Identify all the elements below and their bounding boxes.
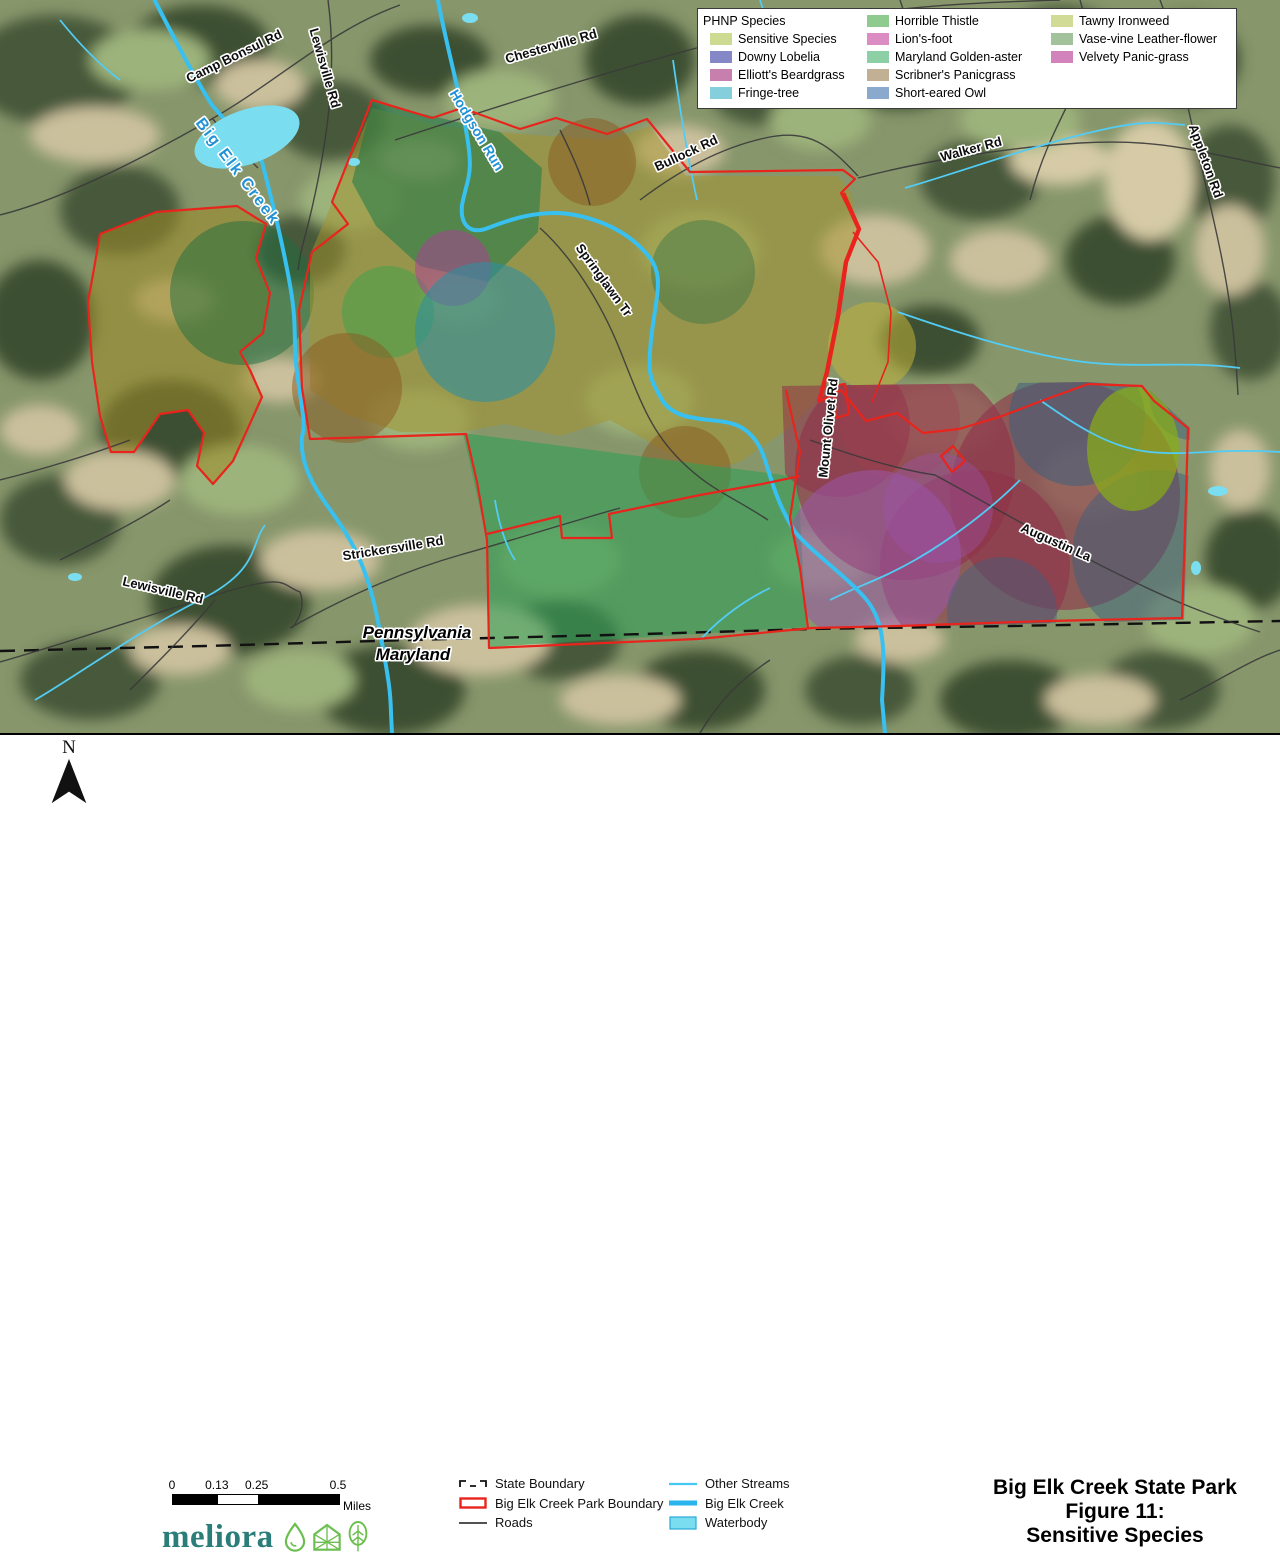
scale-bar: 00.130.250.5: [172, 1478, 338, 1505]
legend-label: Velvety Panic-grass: [1079, 50, 1189, 64]
scale-bar-graphic: [172, 1494, 340, 1505]
legend-swatch-elliott-s-beardgrass: [710, 69, 732, 81]
scale-tick-0-5: 0.5: [330, 1478, 347, 1492]
legend-swatch-sensitive-species: [710, 33, 732, 45]
legend-swatch-tawny-ironweed: [1051, 15, 1073, 27]
footer-legend-label: Other Streams: [705, 1476, 790, 1491]
legend-swatch-short-eared-owl: [867, 87, 889, 99]
footer-symbol-state-boundary: [458, 1478, 492, 1490]
map-title-line-2: Figure 11:: [960, 1500, 1270, 1524]
park-boundary-icon: [458, 1496, 488, 1510]
state-boundary-icon: [458, 1478, 488, 1490]
legend-item-velvety-panic-grass: Velvety Panic-grass: [1051, 48, 1232, 66]
footer-legend-label: Roads: [495, 1515, 533, 1530]
footer-legend-item-other-streams: Other Streams: [668, 1474, 790, 1494]
scale-unit: Miles: [343, 1499, 371, 1513]
legend-swatch-fringe-tree: [710, 87, 732, 99]
stream-thin-icon: [668, 1479, 698, 1489]
north-arrow-icon: [47, 757, 91, 807]
droplet-icon: [282, 1520, 308, 1554]
legend-label: Fringe-tree: [738, 86, 799, 100]
footer-legend-item-big-elk-creek-park-boundary: Big Elk Creek Park Boundary: [458, 1494, 663, 1514]
footer-symbol-waterbody: [668, 1515, 702, 1531]
footer-symbol-road: [458, 1518, 492, 1528]
boundary-legend: State BoundaryBig Elk Creek Park Boundar…: [458, 1474, 663, 1533]
tree-icon: [346, 1520, 370, 1554]
legend-swatch-scribner-s-panicgrass: [867, 69, 889, 81]
figure-page: Camp Bonsul RdLewisville RdChesterville …: [0, 0, 1280, 845]
legend-item-elliott-s-beardgrass: Elliott's Beardgrass: [703, 66, 867, 84]
legend-label: Sensitive Species: [738, 32, 837, 46]
legend-label: Tawny Ironweed: [1079, 14, 1169, 28]
map-footer: N 00.130.250.5 Miles meliora: [0, 733, 1280, 845]
legend-item-sensitive-species: Sensitive Species: [703, 30, 867, 48]
north-label: N: [46, 739, 92, 757]
legend-swatch-velvety-panic-grass: [1051, 51, 1073, 63]
footer-legend-label: State Boundary: [495, 1476, 585, 1491]
legend-label: Elliott's Beardgrass: [738, 68, 845, 82]
greenhouse-icon: [311, 1520, 343, 1554]
north-arrow: N: [46, 739, 92, 812]
water-legend: Other StreamsBig Elk CreekWaterbody: [668, 1474, 790, 1533]
map-title: Big Elk Creek State ParkFigure 11:Sensit…: [960, 1476, 1270, 1548]
legend-label: Horrible Thistle: [895, 14, 979, 28]
legend-item-scribner-s-panicgrass: Scribner's Panicgrass: [867, 66, 1051, 84]
legend-label: Downy Lobelia: [738, 50, 820, 64]
legend-label: Vase-vine Leather-flower: [1079, 32, 1217, 46]
scale-tick-0-25: 0.25: [245, 1478, 268, 1492]
legend-item-fringe-tree: Fringe-tree: [703, 84, 867, 102]
footer-symbol-stream-thick: [668, 1498, 702, 1508]
footer-legend-label: Big Elk Creek Park Boundary: [495, 1496, 663, 1511]
road-icon: [458, 1518, 488, 1528]
legend-item-lion-s-foot: Lion's-foot: [867, 30, 1051, 48]
overlay-fringe-tree: [415, 262, 555, 402]
legend-item-tawny-ironweed: Tawny Ironweed: [1051, 12, 1232, 30]
footer-legend-label: Big Elk Creek: [705, 1496, 784, 1511]
legend-item-horrible-thistle: Horrible Thistle: [867, 12, 1051, 30]
footer-legend-item-big-elk-creek: Big Elk Creek: [668, 1494, 790, 1514]
map-graphics: [0, 0, 1280, 733]
legend-item-short-eared-owl: Short-eared Owl: [867, 84, 1051, 102]
waterbody-icon: [668, 1515, 698, 1531]
map-title-line-1: Big Elk Creek State Park: [960, 1476, 1270, 1500]
footer-legend-label: Waterbody: [705, 1515, 767, 1530]
footer-legend-item-state-boundary: State Boundary: [458, 1474, 663, 1494]
legend-label: Short-eared Owl: [895, 86, 986, 100]
legend-label: Scribner's Panicgrass: [895, 68, 1016, 82]
legend-label: Lion's-foot: [895, 32, 952, 46]
footer-symbol-park-boundary: [458, 1496, 492, 1510]
legend-swatch-horrible-thistle: [867, 15, 889, 27]
map-canvas: Camp Bonsul RdLewisville RdChesterville …: [0, 0, 1280, 733]
meliora-logo: meliora: [162, 1517, 370, 1557]
legend-item-maryland-golden-aster: Maryland Golden-aster: [867, 48, 1051, 66]
legend-swatch-downy-lobelia: [710, 51, 732, 63]
scale-tick-0-13: 0.13: [205, 1478, 228, 1492]
scale-tick-0: 0: [169, 1478, 176, 1492]
legend-label: Maryland Golden-aster: [895, 50, 1022, 64]
map-title-line-3: Sensitive Species: [960, 1524, 1270, 1548]
stream-thick-icon: [668, 1498, 698, 1508]
legend-item-downy-lobelia: Downy Lobelia: [703, 48, 867, 66]
legend-item-vase-vine-leather-flower: Vase-vine Leather-flower: [1051, 30, 1232, 48]
footer-legend-item-waterbody: Waterbody: [668, 1513, 790, 1533]
legend-swatch-maryland-golden-aster: [867, 51, 889, 63]
meliora-logo-text: meliora: [162, 1517, 274, 1557]
phnp-legend-title: PHNP Species: [703, 12, 867, 30]
footer-legend-item-roads: Roads: [458, 1513, 663, 1533]
legend-swatch-lion-s-foot: [867, 33, 889, 45]
phnp-species-legend: PHNP SpeciesSensitive SpeciesDowny Lobel…: [697, 8, 1237, 109]
footer-symbol-stream-thin: [668, 1479, 702, 1489]
legend-swatch-vase-vine-leather-flower: [1051, 33, 1073, 45]
